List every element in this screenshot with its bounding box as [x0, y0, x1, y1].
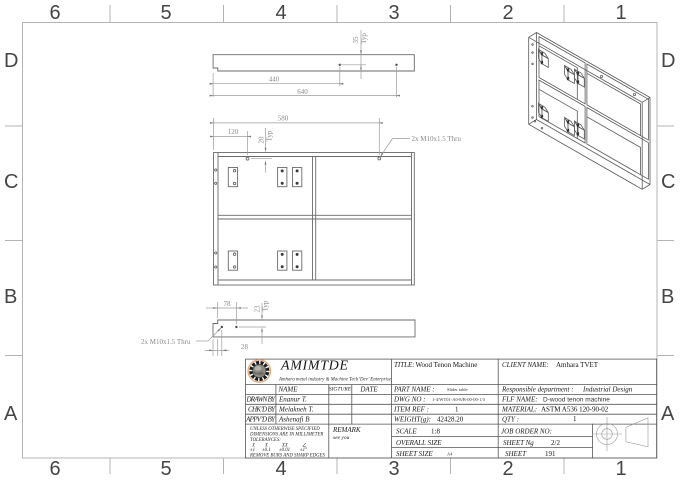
svg-text:20: 20	[258, 136, 266, 144]
svg-text:580: 580	[278, 115, 289, 123]
svg-text:REMOVE BURS AND SHARP EDGES: REMOVE BURS AND SHARP EDGES	[249, 454, 326, 459]
svg-text:440: 440	[269, 76, 280, 84]
svg-text:Amhara TVET: Amhara TVET	[556, 361, 599, 369]
svg-text:SHEET Ng: SHEET Ng	[503, 439, 534, 447]
svg-text:4: 4	[275, 458, 286, 480]
svg-text:see you: see you	[333, 435, 350, 441]
svg-text:JOB ORDER NO:: JOB ORDER NO:	[501, 428, 552, 436]
svg-text:6: 6	[49, 2, 60, 24]
svg-text:SHEET SIZE: SHEET SIZE	[396, 450, 433, 458]
svg-text:2/2: 2/2	[551, 439, 560, 447]
svg-text:Slider table: Slider table	[447, 387, 468, 392]
svg-text:NAME: NAME	[277, 386, 298, 394]
svg-text:AMIMTDE: AMIMTDE	[280, 359, 348, 374]
svg-text:OVERALL SIZE: OVERALL SIZE	[396, 439, 442, 447]
svg-text:2x M10x1.5 Thru: 2x M10x1.5 Thru	[412, 135, 462, 143]
svg-text:ITEM REF :: ITEM REF :	[393, 406, 429, 414]
svg-text:C: C	[4, 171, 18, 193]
svg-text:TITLE:: TITLE:	[394, 361, 415, 369]
svg-text:Typ: Typ	[266, 130, 274, 141]
svg-text:MATERIAL:: MATERIAL:	[501, 406, 537, 414]
svg-text:Typ: Typ	[262, 300, 270, 311]
svg-text:D-wood tenon machine: D-wood tenon machine	[543, 397, 610, 404]
svg-text:UNLESS OTHERWISE SPECIFIED: UNLESS OTHERWISE SPECIFIED	[250, 427, 320, 432]
svg-text:23: 23	[254, 305, 262, 313]
svg-text:SCALE: SCALE	[396, 428, 417, 436]
svg-text:3: 3	[388, 2, 399, 24]
svg-text:TOLERANCES:: TOLERANCES:	[250, 438, 281, 443]
svg-text:Responsible department :: Responsible department :	[501, 386, 574, 394]
svg-text:D: D	[661, 50, 675, 72]
svg-text:SIGTURE: SIGTURE	[329, 387, 352, 393]
svg-text:FLF NAME:: FLF NAME:	[501, 396, 538, 404]
svg-text:28: 28	[241, 343, 249, 351]
svg-text:5: 5	[160, 458, 171, 480]
svg-text:CLIENT NAME:: CLIENT NAME:	[502, 361, 549, 369]
svg-text:CHK’D BY: CHK’D BY	[248, 406, 276, 414]
svg-text:WEIGHT(g):: WEIGHT(g):	[394, 416, 431, 424]
svg-text:A: A	[4, 403, 18, 425]
svg-text:4: 4	[275, 2, 286, 24]
svg-text:640: 640	[297, 88, 308, 96]
svg-text:3: 3	[388, 458, 399, 480]
svg-text:Typ: Typ	[360, 33, 368, 44]
svg-text:A4: A4	[447, 452, 453, 457]
svg-text:Wood Tenon Machine: Wood Tenon Machine	[416, 361, 478, 369]
svg-text:D: D	[4, 50, 18, 72]
svg-text:1:8: 1:8	[431, 428, 440, 436]
svg-text:1: 1	[615, 458, 626, 480]
svg-text:DATE: DATE	[359, 386, 378, 394]
svg-text:SHEET: SHEET	[505, 450, 527, 458]
svg-text:DWG NO :: DWG NO :	[393, 396, 426, 404]
svg-text:1: 1	[573, 415, 577, 423]
svg-text:REMARK: REMARK	[332, 426, 361, 434]
svg-text:120: 120	[228, 128, 239, 136]
svg-text:DIMENSIONS ARE IN MILLIMETER: DIMENSIONS ARE IN MILLIMETER	[249, 433, 323, 438]
svg-text:DRAWN BY: DRAWN BY	[246, 396, 277, 404]
svg-text:A: A	[661, 403, 675, 425]
svg-text:Ashenafi B: Ashenafi B	[278, 416, 310, 424]
svg-text:B: B	[4, 286, 17, 308]
svg-text:1: 1	[455, 406, 459, 414]
svg-text:Enanur T.: Enanur T.	[278, 396, 307, 404]
svg-text:Amhara metal industry & Machin: Amhara metal industry & Machine Tech’Dev…	[278, 378, 392, 383]
svg-text:42428.20: 42428.20	[437, 416, 464, 424]
svg-text:QTY :: QTY :	[502, 416, 519, 424]
svg-text:Melakneh T.: Melakneh T.	[278, 406, 314, 414]
svg-text:2: 2	[502, 2, 513, 24]
svg-text:ASTM A536 120-90-02: ASTM A536 120-90-02	[541, 406, 609, 414]
svg-text:2: 2	[502, 458, 513, 480]
svg-text:191: 191	[545, 450, 556, 458]
svg-text:5: 5	[160, 2, 171, 24]
svg-text:1-4/WT01-A0-8/B-00-00-1/3: 1-4/WT01-A0-8/B-00-00-1/3	[432, 397, 486, 402]
svg-text:Industrial Design: Industrial Design	[582, 386, 633, 394]
svg-text:C: C	[661, 171, 675, 193]
svg-text:78: 78	[224, 300, 232, 308]
svg-text:PART NAME :: PART NAME :	[393, 386, 435, 394]
svg-text:1: 1	[615, 2, 626, 24]
svg-text:6: 6	[49, 458, 60, 480]
svg-text:APPV’D BY: APPV’D BY	[245, 416, 276, 424]
svg-text:2x M10x1.5 Thru: 2x M10x1.5 Thru	[141, 338, 191, 346]
svg-text:B: B	[661, 286, 674, 308]
svg-text:35: 35	[352, 36, 360, 44]
